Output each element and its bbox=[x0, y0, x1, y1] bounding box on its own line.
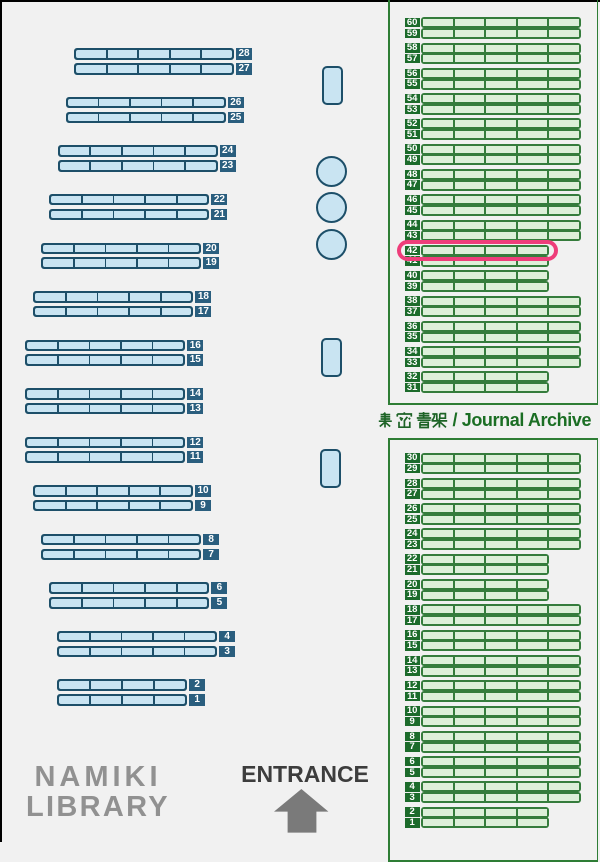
svg-text:/ Journal Archive: / Journal Archive bbox=[453, 410, 592, 430]
